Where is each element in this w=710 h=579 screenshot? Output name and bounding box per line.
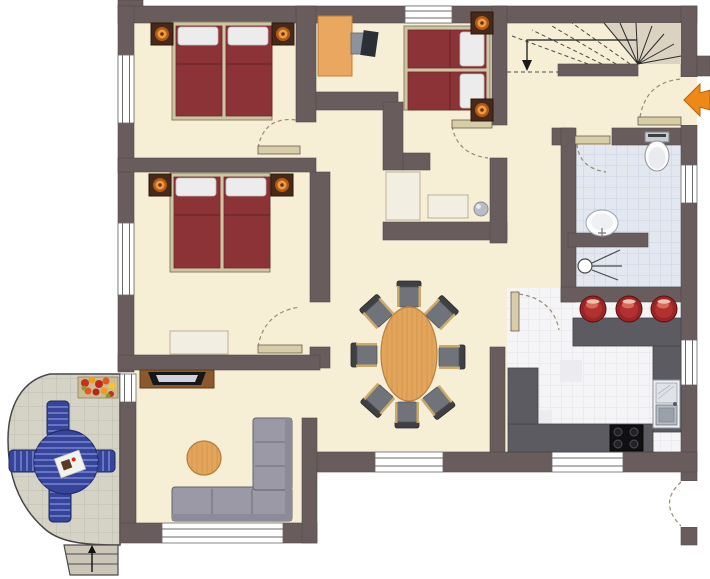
wall-living-bottom <box>120 523 162 543</box>
hall-vase <box>474 202 488 216</box>
bedroom1-bed <box>172 22 272 120</box>
wall-exterior-bottom <box>623 452 697 472</box>
floor-plan-canvas <box>0 0 710 579</box>
wall-niche-right <box>490 158 507 243</box>
nightstand <box>151 23 173 45</box>
wall-living-left <box>120 402 136 523</box>
window-bathroom <box>681 165 697 203</box>
wall-exterior-bottom <box>443 452 552 472</box>
wall-kitchen-divider <box>490 347 505 452</box>
hall-closet <box>386 172 420 220</box>
bar-stool <box>580 296 606 322</box>
window-dining-bottom <box>375 452 443 472</box>
dining-table <box>381 307 437 401</box>
wall-exterior-right <box>681 203 697 340</box>
nightstand <box>272 23 294 45</box>
window-kitchen-bottom <box>552 452 623 472</box>
window-left-bedroom1 <box>118 55 134 123</box>
tv-sideboard <box>140 370 214 388</box>
nightstand <box>471 99 493 121</box>
wall-exterior-right-upper <box>681 6 697 77</box>
window-kitchen-right <box>681 340 697 385</box>
wall-niche-bottom <box>383 222 507 240</box>
coffee-table <box>187 441 221 475</box>
dining-chair <box>351 343 377 367</box>
wall-exterior-bottom <box>317 452 375 472</box>
wall-exterior-right <box>681 125 697 165</box>
floor-plan <box>0 0 710 579</box>
hall-closet <box>428 195 468 218</box>
dining-chair <box>395 402 419 428</box>
wall-niche-top <box>403 153 430 170</box>
wall-bedroom2-right <box>310 172 330 302</box>
wall-niche-left <box>383 102 403 170</box>
window-patio-door <box>120 374 136 402</box>
exterior-door-opening <box>681 481 697 527</box>
wall-bathroom-left <box>561 128 576 302</box>
window-living-bottom <box>162 523 283 543</box>
wall-bedroom1-right <box>296 6 316 122</box>
wall-bedroom-divider <box>118 158 316 172</box>
wall-stair-landing <box>558 64 638 76</box>
kitchen-sink <box>653 380 680 428</box>
wall-living-step <box>302 418 317 543</box>
wall-entry-pier <box>697 56 710 76</box>
wall-stairhall-left <box>492 6 507 125</box>
bar-stool <box>651 296 677 322</box>
dining-chair <box>439 345 465 369</box>
cooktop <box>610 425 643 451</box>
nightstand <box>271 174 293 196</box>
toilet <box>645 132 669 171</box>
flower-box <box>78 377 118 399</box>
bar-stool <box>616 296 642 322</box>
patio-steps <box>64 545 118 575</box>
washbasin <box>586 210 618 236</box>
bedroom3-chair <box>351 30 379 57</box>
door-garden-arc <box>670 482 682 526</box>
window-left-bedroom2 <box>118 223 134 295</box>
bedroom2-dresser <box>170 331 228 354</box>
bedroom2-bed <box>170 173 270 272</box>
bedroom3-bed <box>404 26 490 110</box>
dining-set <box>351 281 465 428</box>
nightstand <box>471 12 493 34</box>
window-top <box>405 6 452 23</box>
wall-exterior-right-lower <box>681 527 697 545</box>
wall-bedroom2-bottom <box>118 355 320 370</box>
dining-chair <box>397 281 421 307</box>
bedroom3-wardrobe <box>318 16 352 76</box>
patio-table <box>34 430 98 494</box>
nightstand <box>149 174 171 196</box>
